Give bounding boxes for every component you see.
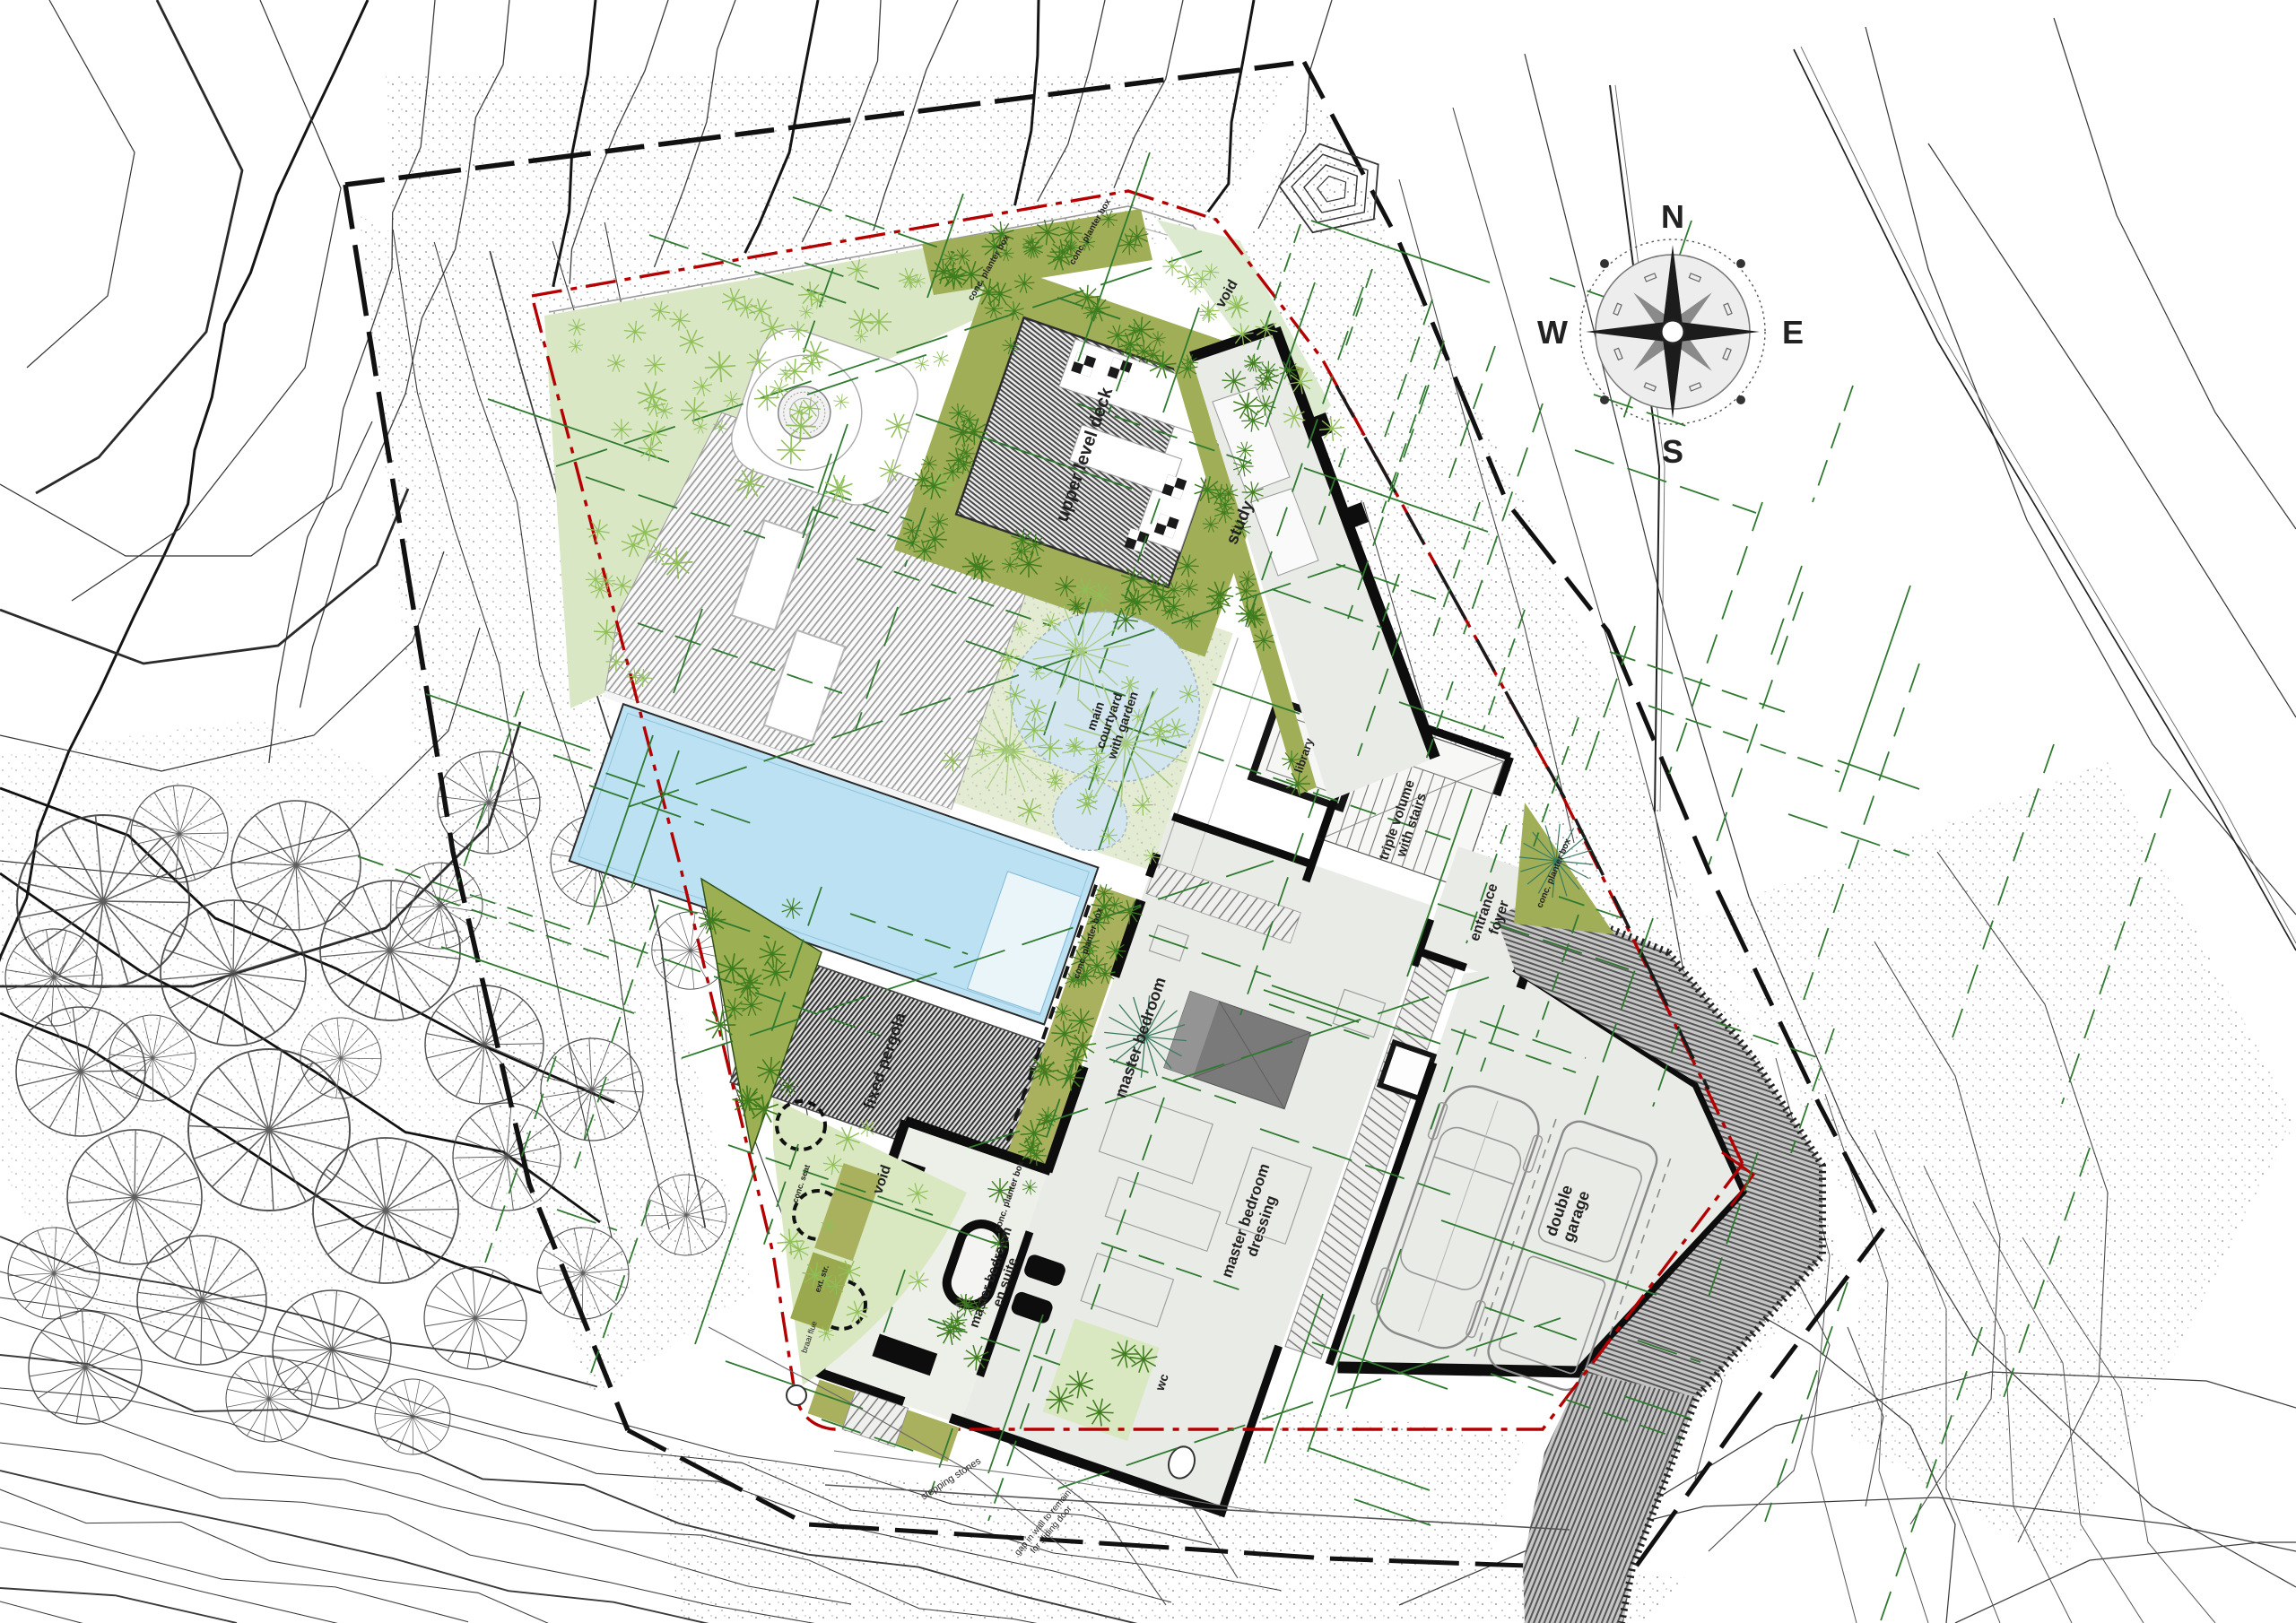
- svg-text:S: S: [1662, 433, 1683, 470]
- svg-text:N: N: [1661, 198, 1684, 235]
- svg-text:E: E: [1782, 314, 1804, 351]
- svg-text:W: W: [1537, 314, 1568, 351]
